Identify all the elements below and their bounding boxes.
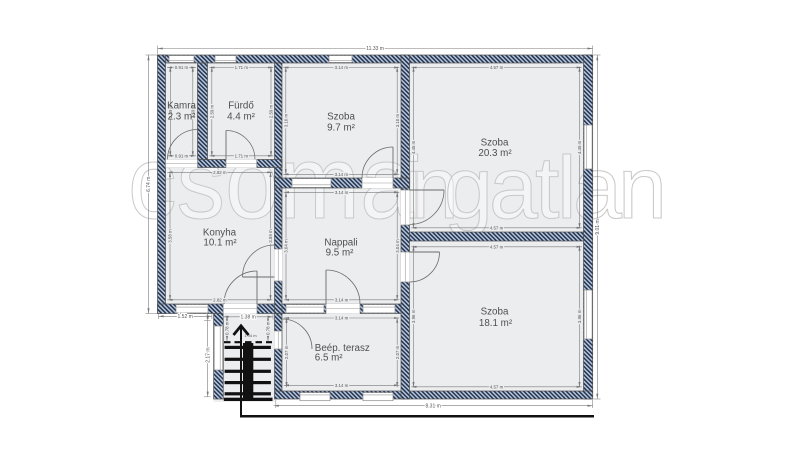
svg-text:20.3 m²: 20.3 m² [478, 148, 512, 159]
svg-text:2.17 m: 2.17 m [205, 348, 211, 363]
svg-text:Kamra: Kamra [167, 101, 196, 112]
svg-text:4.57 m: 4.57 m [490, 225, 504, 230]
svg-text:3.96 m: 3.96 m [577, 309, 582, 323]
svg-text:4.45 m: 4.45 m [411, 140, 416, 154]
svg-text:3.10 m: 3.10 m [395, 113, 400, 127]
svg-text:1.38 m: 1.38 m [241, 314, 256, 320]
svg-text:0.78 m: 0.78 m [225, 321, 230, 335]
svg-text:18.1 m²: 18.1 m² [479, 318, 513, 329]
svg-text:9.5 m²: 9.5 m² [326, 248, 355, 259]
svg-text:4.57 m: 4.57 m [490, 384, 504, 389]
svg-text:0.91 m: 0.91 m [175, 153, 189, 158]
svg-text:2.07 m: 2.07 m [395, 345, 400, 359]
svg-text:2.59 m: 2.59 m [209, 104, 214, 118]
svg-text:4.4 m²: 4.4 m² [227, 112, 256, 123]
svg-text:2.07 m: 2.07 m [284, 345, 289, 359]
svg-text:3.14 m: 3.14 m [335, 383, 349, 388]
svg-text:1.52 m: 1.52 m [178, 314, 193, 320]
svg-text:3.14 m: 3.14 m [335, 65, 349, 70]
svg-text:2.82 m: 2.82 m [213, 170, 227, 175]
svg-text:3.58 m: 3.58 m [168, 229, 173, 243]
svg-text:8.31 m: 8.31 m [426, 403, 441, 409]
svg-text:6.74 m: 6.74 m [146, 177, 152, 192]
svg-text:9.7 m²: 9.7 m² [327, 123, 356, 134]
svg-text:3.04 m: 3.04 m [284, 239, 289, 253]
svg-text:3.14 m: 3.14 m [335, 172, 349, 177]
svg-text:Szoba: Szoba [481, 307, 509, 318]
svg-text:Fürdő: Fürdő [228, 101, 254, 112]
svg-text:3.14 m: 3.14 m [335, 190, 349, 195]
svg-text:4.57 m: 4.57 m [490, 65, 504, 70]
svg-text:10.1 m²: 10.1 m² [203, 237, 237, 248]
svg-text:9.01 m: 9.01 m [595, 219, 601, 234]
svg-text:3.10 m: 3.10 m [283, 113, 288, 127]
svg-text:6.5 m²: 6.5 m² [315, 353, 344, 364]
svg-text:1.71 m: 1.71 m [235, 65, 249, 70]
svg-text:3.59 m: 3.59 m [268, 229, 273, 243]
svg-text:4.45 m: 4.45 m [577, 140, 582, 154]
svg-text:3.14 m: 3.14 m [335, 297, 349, 302]
svg-text:2.3 m²: 2.3 m² [168, 112, 197, 123]
svg-text:2.82 m: 2.82 m [213, 297, 227, 302]
svg-text:Szoba: Szoba [481, 137, 509, 148]
svg-text:11.33 m: 11.33 m [366, 46, 384, 52]
svg-text:Nappali: Nappali [324, 237, 357, 248]
svg-text:ingatlan: ingatlan [404, 138, 667, 237]
svg-text:0.78 m: 0.78 m [266, 321, 271, 335]
svg-text:3.14 m: 3.14 m [335, 316, 349, 321]
svg-text:2.59 m: 2.59 m [269, 104, 274, 118]
svg-text:0.91 m: 0.91 m [175, 65, 189, 70]
svg-text:1.71 m: 1.71 m [235, 153, 249, 158]
svg-text:3.96 m: 3.96 m [411, 309, 416, 323]
svg-text:3.04 m: 3.04 m [395, 239, 400, 253]
svg-text:4.57 m: 4.57 m [490, 244, 504, 249]
svg-text:Szoba: Szoba [327, 112, 355, 123]
